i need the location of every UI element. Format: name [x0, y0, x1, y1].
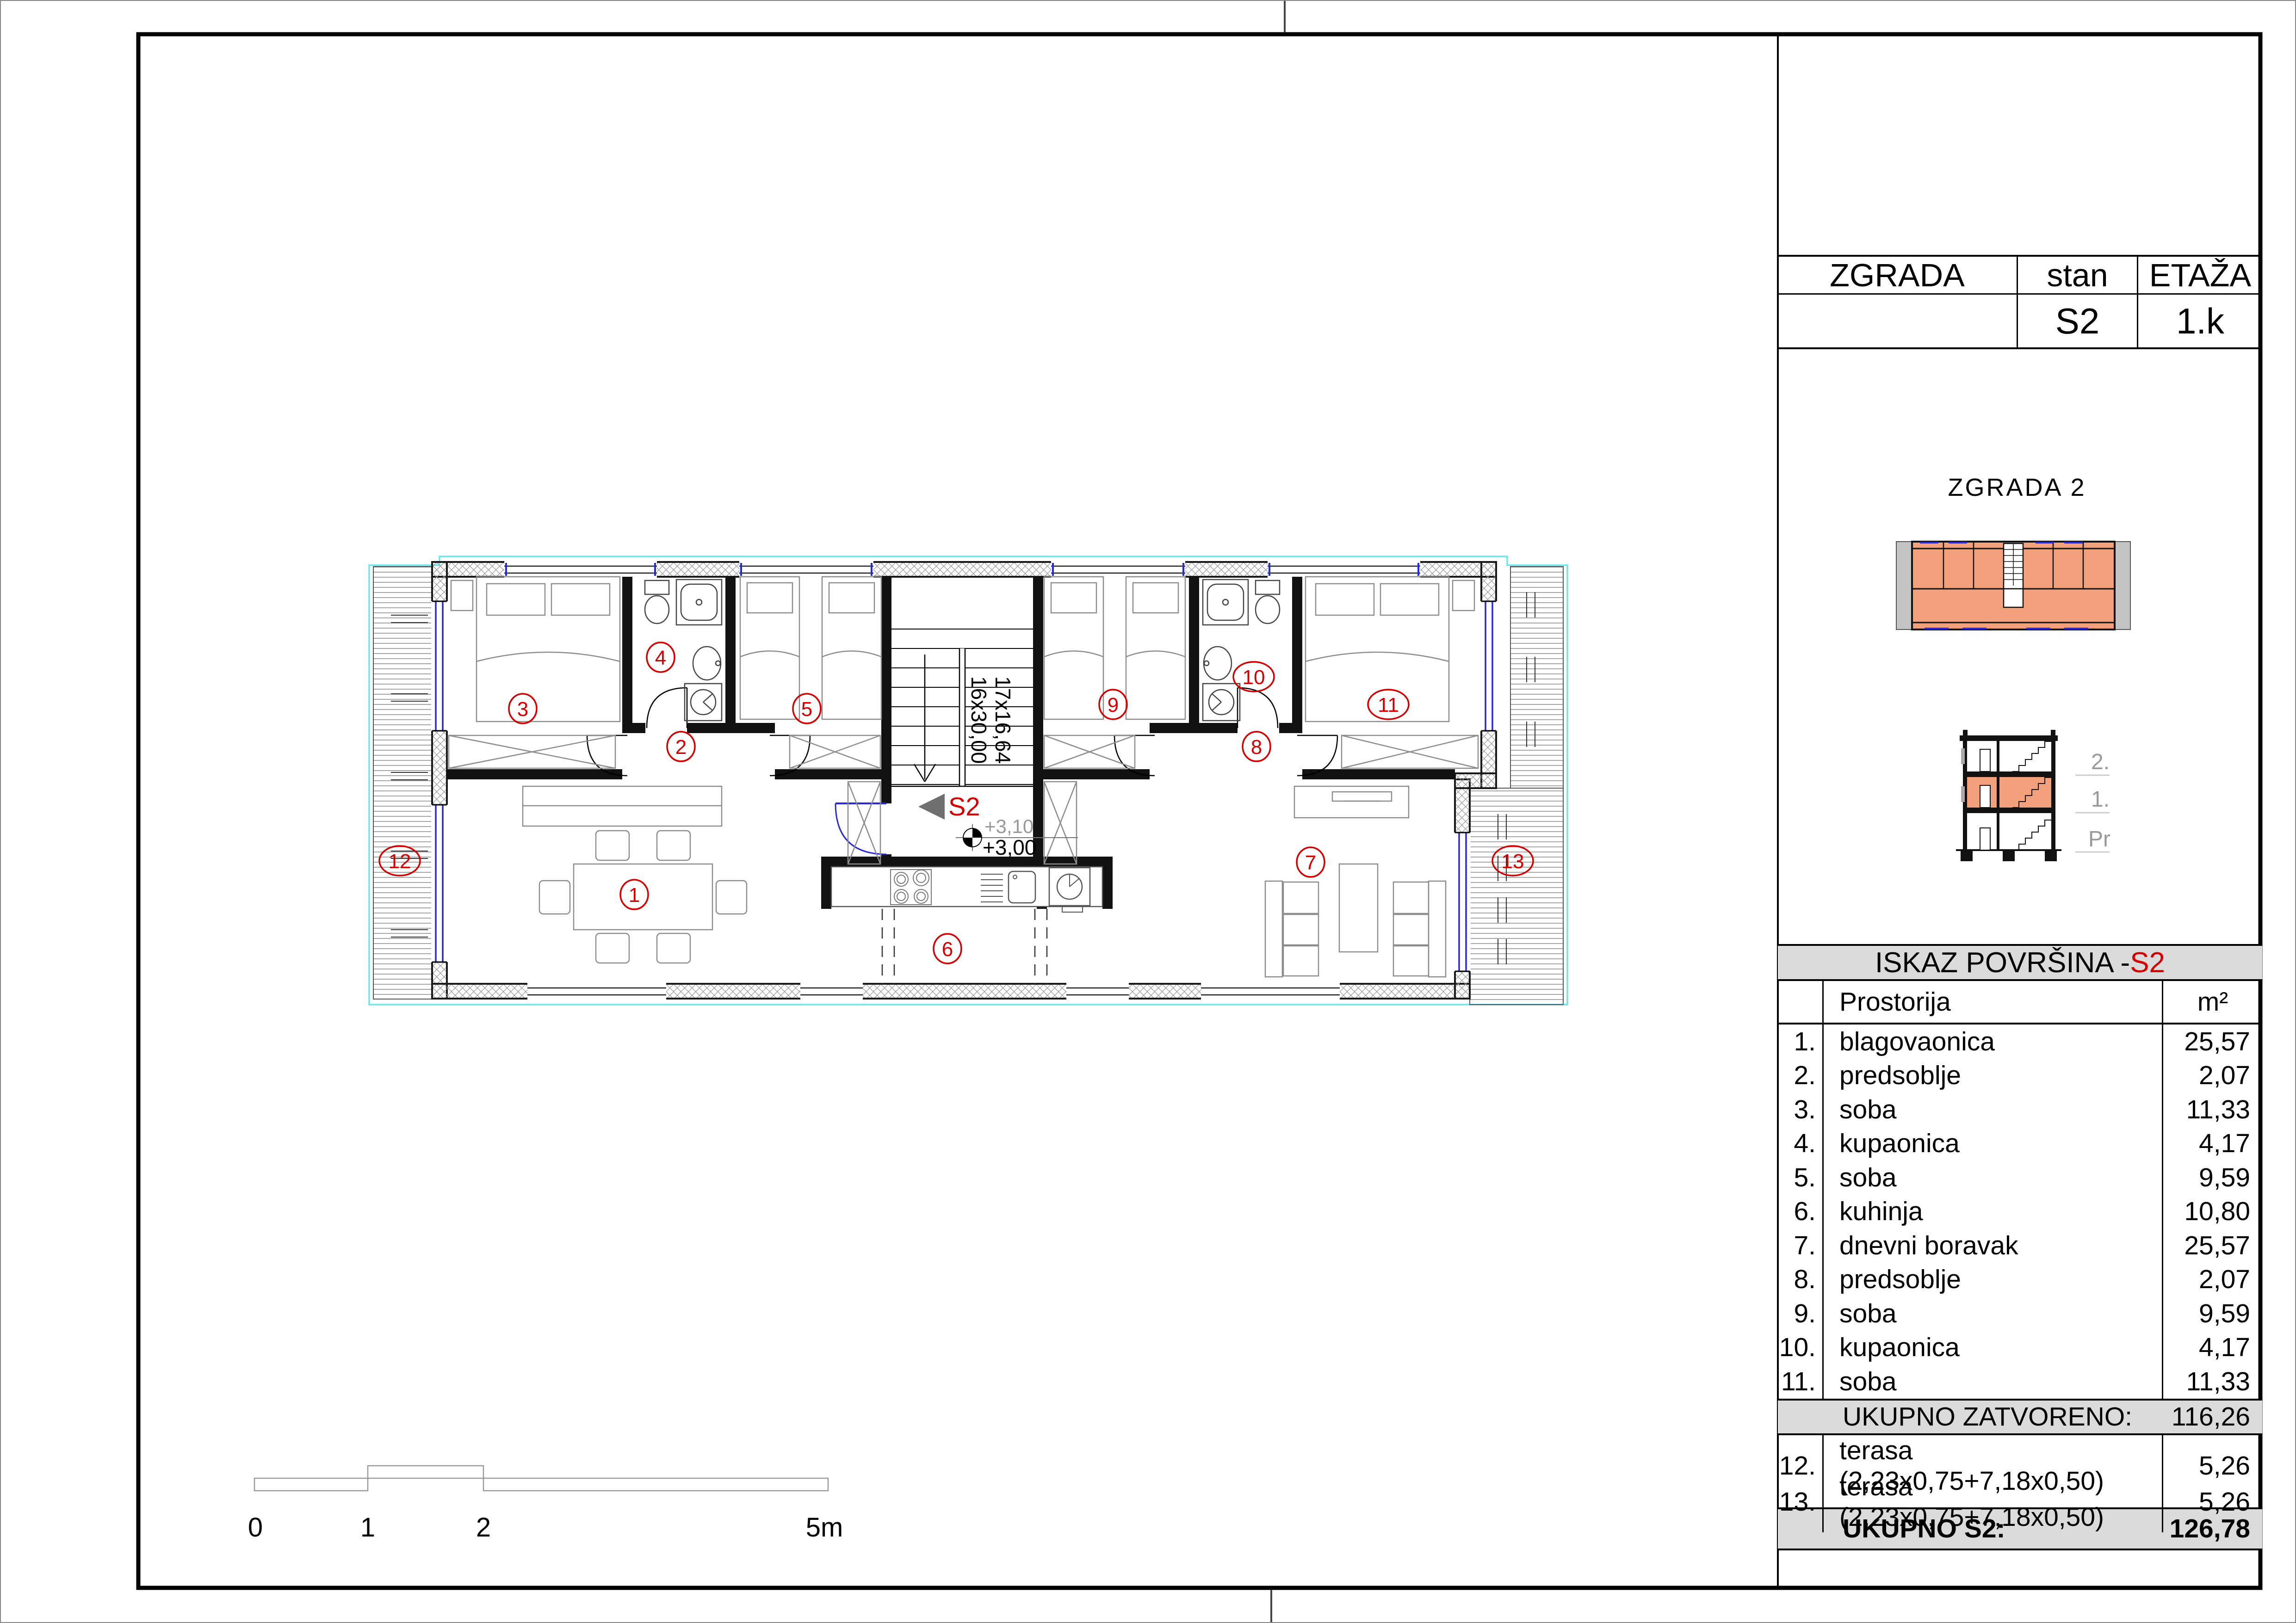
areas-table-title: ISKAZ POVRŠINA - S2: [1778, 944, 2262, 981]
room-label-3: 3: [509, 694, 537, 723]
section-label-2: 2.: [2091, 750, 2110, 774]
titleblock-stan-value: S2: [2018, 295, 2138, 347]
titleblock-col-stan: stan: [2018, 257, 2138, 295]
table-row: 10.kupaonica4,17: [1778, 1331, 2262, 1365]
titleblock-building-value: [1778, 295, 2018, 347]
interior-walls: [447, 577, 1455, 909]
table-row: 7.dnevni boravak25,57: [1778, 1228, 2262, 1263]
svg-text:6: 6: [942, 938, 953, 961]
svg-text:12: 12: [389, 850, 411, 873]
table-row: 1.blagovaonica25,57: [1778, 1024, 2262, 1059]
svg-text:2: 2: [675, 736, 687, 759]
stair-dimension-1: 17x16,64: [991, 676, 1015, 764]
svg-text:1: 1: [629, 884, 640, 907]
section-label-pr: Pr: [2088, 827, 2110, 852]
areas-title-unit: S2: [2130, 946, 2165, 979]
drawing-sheet: 17x16,64 16x30,00: [0, 0, 2296, 1623]
scale-5m: 5m: [806, 1512, 843, 1543]
subtotal-value: 116,26: [2172, 1401, 2262, 1432]
header-num-col: [1778, 981, 1824, 1023]
titleblock-col-zgrada: ZGRADA: [1778, 257, 2018, 295]
table-row: 6.kuhinja10,80: [1778, 1195, 2262, 1229]
svg-text:10: 10: [1243, 666, 1265, 689]
room-label-5: 5: [793, 694, 821, 723]
key-plan-title: ZGRADA 2: [1948, 474, 2086, 501]
room-label-6: 6: [934, 934, 961, 963]
unit-label: S2: [948, 792, 980, 821]
titleblock-col-etaza: ETAŽA: [2138, 257, 2262, 295]
furniture-living: [1265, 786, 1446, 977]
svg-text:3: 3: [517, 698, 528, 721]
elevation-upper: +3,10: [984, 815, 1034, 837]
room-label-10: 10: [1233, 662, 1274, 691]
section-label-1: 1.: [2091, 787, 2110, 812]
entry-door: [835, 803, 892, 854]
terrace-12: [373, 567, 432, 999]
svg-text:13: 13: [1502, 850, 1524, 873]
room-label-7: 7: [1297, 847, 1324, 877]
table-row: 3.soba11,33: [1778, 1092, 2262, 1127]
titleblock-etaza-value: 1.k: [2138, 295, 2262, 347]
section-diagram: 2. 1. Pr: [1956, 730, 2110, 861]
svg-text:7: 7: [1305, 852, 1316, 874]
areas-title-prefix: ISKAZ POVRŠINA -: [1875, 946, 2130, 979]
stair-dimension-2: 16x30,00: [967, 676, 991, 764]
table-row: 2.predsoblje2,07: [1778, 1059, 2262, 1093]
table-row: 8.predsoblje2,07: [1778, 1263, 2262, 1297]
total-bar: UKUPNO S2: 126,78: [1778, 1507, 2262, 1550]
furniture-dining: [523, 786, 747, 963]
svg-text:9: 9: [1108, 694, 1119, 716]
subtotal-label: UKUPNO ZATVORENO:: [1778, 1401, 2172, 1432]
room-label-4: 4: [647, 642, 675, 672]
unit-boundary: [369, 556, 1567, 1005]
areas-table-rows: 1.blagovaonica25,57 2.predsoblje2,07 3.s…: [1778, 1024, 2262, 1399]
table-row: 11.soba11,33: [1778, 1364, 2262, 1399]
scale-1: 1: [360, 1512, 375, 1543]
room-label-2: 2: [667, 732, 695, 761]
svg-text:5: 5: [801, 698, 812, 721]
total-value: 126,78: [2170, 1513, 2262, 1544]
table-row: 5.soba9,59: [1778, 1160, 2262, 1195]
svg-text:8: 8: [1251, 736, 1262, 759]
total-label: UKUPNO S2:: [1778, 1513, 2170, 1544]
table-row: 9.soba9,59: [1778, 1296, 2262, 1331]
scale-2: 2: [476, 1512, 491, 1543]
header-room-col: Prostorija: [1824, 981, 2163, 1023]
room-label-11: 11: [1368, 690, 1409, 719]
terrace-rows: 12.terasa (2,23x0,75+7,18x0,50)5,26 13.t…: [1778, 1435, 2262, 1507]
areas-table: ISKAZ POVRŠINA - S2 Prostorija m² 1.blag…: [1778, 944, 2262, 1550]
table-row: 13.terasa (2,23x0,75+7,18x0,50)5,26: [1778, 1471, 2262, 1507]
svg-text:4: 4: [655, 647, 666, 669]
table-row: 12.terasa (2,23x0,75+7,18x0,50)5,26: [1778, 1435, 2262, 1471]
svg-text:11: 11: [1378, 694, 1399, 716]
room-label-1: 1: [620, 880, 648, 909]
titleblock-table: ZGRADA stan ETAŽA S2 1.k: [1778, 255, 2262, 349]
table-row: 4.kupaonica4,17: [1778, 1127, 2262, 1161]
unit-marker: S2 +3,10 +3,00: [918, 792, 1078, 859]
subtotal-bar: UKUPNO ZATVORENO: 116,26: [1778, 1399, 2262, 1435]
key-plan: ZGRADA 2: [1896, 474, 2130, 629]
scale-0: 0: [248, 1512, 263, 1543]
header-m2-col: m²: [2163, 981, 2262, 1023]
room-label-8: 8: [1243, 732, 1270, 761]
elevation-lower: +3,00: [983, 835, 1036, 859]
floor-plan: 17x16,64 16x30,00: [248, 556, 1567, 1543]
scale-bar: 0 1 2 5m: [248, 1466, 843, 1543]
kitchen: [831, 867, 1102, 984]
areas-table-header: Prostorija m²: [1778, 981, 2262, 1024]
